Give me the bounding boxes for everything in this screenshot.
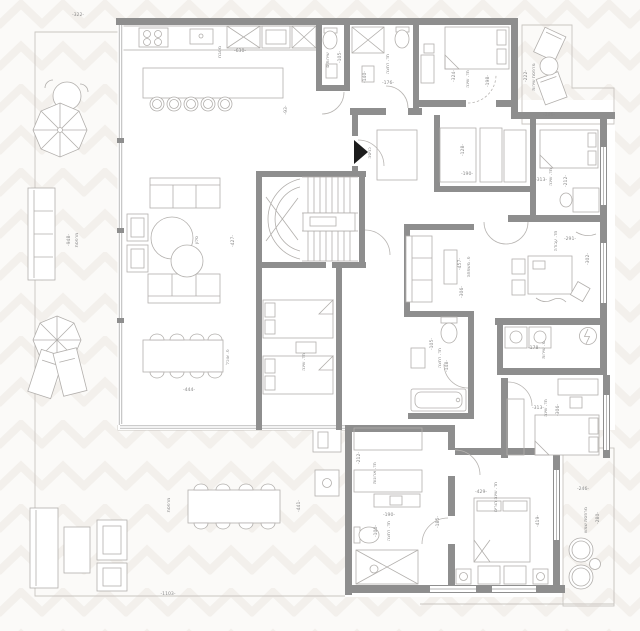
dimension-label: -105-	[337, 51, 343, 63]
round-table	[540, 57, 558, 75]
chair	[424, 44, 434, 53]
room-label: סלון	[194, 236, 200, 244]
armchair	[127, 245, 148, 272]
dimension-label: -429-	[475, 489, 487, 495]
dimension-label: -324-	[451, 70, 457, 82]
round-lounger	[569, 538, 593, 562]
room-label: חד. רחצה	[387, 521, 392, 541]
nightstand	[296, 342, 316, 353]
outdoor-sofa	[28, 188, 55, 280]
dimension-label: -190-	[461, 171, 473, 177]
dimension-label: -291-	[564, 236, 576, 242]
window	[492, 586, 536, 592]
dimension-label: -148-	[444, 360, 450, 372]
dimension-label: -212-	[563, 175, 569, 187]
bathtub	[411, 389, 466, 411]
room-label: מרפסת שמש	[584, 507, 589, 533]
living-window-wall	[117, 25, 124, 425]
nightstand	[533, 569, 548, 584]
room-label: חד. שינה	[544, 399, 549, 417]
electric-panel	[580, 328, 597, 345]
kitchen-island	[143, 68, 283, 98]
dimension-label: -457-	[457, 258, 463, 270]
dimension-label: -630-	[234, 48, 246, 54]
floor-plan: -322-מטבח-630--93-סלון-427-פ. אוכל-444-מ…	[0, 0, 640, 631]
dimension-label: -100-	[373, 525, 379, 537]
nightstand	[456, 569, 471, 584]
table	[444, 250, 457, 284]
dimension-label: -176-	[382, 80, 394, 86]
sofa	[406, 236, 432, 302]
dimension-label: -246-	[577, 486, 589, 492]
dimension-label: -128-	[460, 144, 466, 156]
table	[528, 256, 572, 294]
room-label: חד. שינה	[466, 70, 471, 88]
toilet	[395, 27, 409, 48]
coffee-table	[171, 245, 203, 277]
dimension-label: -1103-	[160, 591, 175, 597]
washer	[505, 327, 527, 348]
side-table	[590, 559, 601, 570]
dimension-label: -246-	[543, 112, 555, 118]
window	[554, 470, 559, 540]
desk	[573, 188, 599, 212]
chair	[570, 397, 582, 408]
sink	[411, 348, 425, 368]
bar-stools	[150, 97, 232, 111]
dining-table	[143, 340, 223, 372]
dimension-label: -419-	[535, 515, 541, 527]
shower	[356, 550, 418, 584]
toilet	[441, 317, 457, 343]
desk	[421, 55, 434, 83]
dimension-label: -444-	[183, 387, 195, 393]
bench	[478, 566, 500, 584]
dimension-label: -306-	[555, 404, 561, 416]
dimension-label: -306-	[459, 286, 465, 298]
living-window-bottom	[120, 424, 345, 430]
dimension-label: -185-	[435, 516, 441, 528]
room-label: חד. ארונות	[373, 462, 378, 483]
room-label: חד. שינה הורים	[494, 482, 499, 512]
dimension-label: -427-	[230, 235, 236, 247]
room-label: חד. שינה	[549, 168, 554, 186]
window	[601, 243, 606, 303]
sofa	[150, 178, 220, 208]
dryer	[529, 327, 551, 348]
window	[601, 147, 606, 205]
dimension-label: -190-	[383, 512, 395, 518]
room-label: מ. שירות	[542, 341, 547, 358]
room-label: מרפסת	[167, 498, 172, 513]
dimension-label: -948-	[66, 234, 72, 246]
room-label: שירותים	[326, 52, 331, 68]
outdoor-dining-table	[188, 484, 280, 529]
window	[604, 395, 609, 450]
dining-area	[143, 334, 223, 378]
dimension-label: -212-	[356, 452, 362, 464]
dimension-label: -140-	[362, 71, 368, 83]
room-label: מרפסת שירות	[532, 63, 537, 90]
room-label: חד. רחצה	[386, 54, 391, 74]
floor-plan-canvas: -322-מטבח-630--93-סלון-427-פ. אוכל-444-מ…	[0, 0, 640, 631]
dimension-label: -313-	[535, 177, 547, 183]
room-label: פ. אוכל	[225, 349, 231, 364]
toilet	[323, 28, 337, 49]
chair	[512, 259, 525, 274]
dimension-label: -178-	[528, 345, 540, 351]
room-label: חד. עבודה	[554, 231, 559, 252]
dimension-label: -302-	[585, 253, 591, 265]
window	[430, 586, 476, 592]
room-label: מרפסת	[75, 233, 80, 248]
room-label: חד. שינה	[302, 353, 307, 371]
chair	[560, 193, 572, 207]
shower	[352, 27, 384, 53]
armchair	[127, 214, 148, 241]
dimension-label: -222-	[523, 70, 529, 82]
room-label: חד. רחצה	[438, 348, 443, 368]
round-lounger	[569, 565, 593, 589]
dimension-label: -441-	[296, 500, 302, 512]
dimension-label: -105-	[429, 338, 435, 350]
desk	[558, 379, 598, 395]
dimension-label: -93-	[283, 105, 289, 115]
sofa	[148, 274, 220, 303]
room-label: כניסה	[368, 147, 373, 159]
dimension-label: -313-	[532, 405, 544, 411]
dimension-label: -198-	[485, 75, 491, 87]
dimension-label: -322-	[72, 12, 84, 18]
dimension-label: -280-	[595, 512, 601, 524]
room-label: פ. משפחה	[467, 256, 472, 277]
bench	[504, 566, 526, 584]
chair	[512, 280, 525, 295]
room-label: מטבח	[218, 46, 223, 58]
